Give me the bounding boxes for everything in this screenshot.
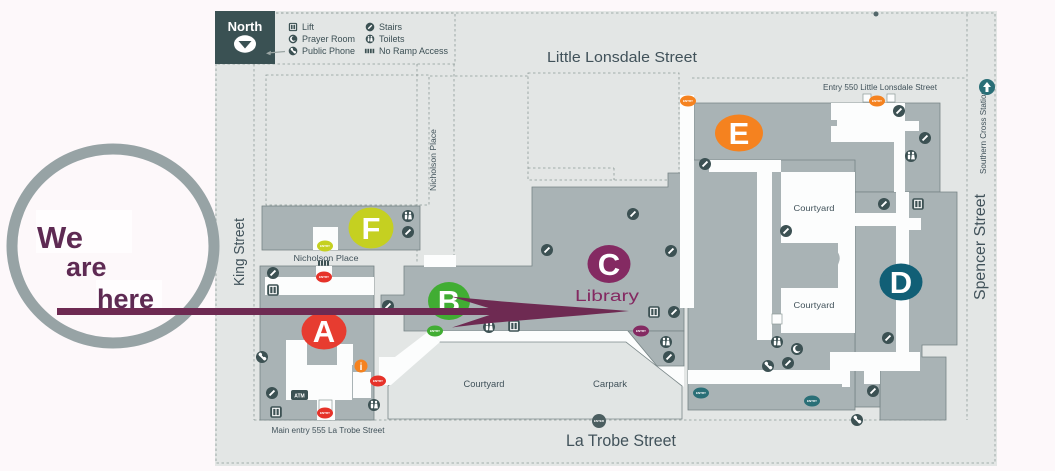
- svg-text:ENTRY: ENTRY: [430, 329, 440, 333]
- svg-text:ENTRY: ENTRY: [872, 99, 882, 103]
- svg-text:Nicholson Place: Nicholson Place: [428, 129, 438, 191]
- svg-text:Southern Cross Station: Southern Cross Station: [978, 90, 988, 174]
- svg-text:ENTRY: ENTRY: [319, 275, 329, 279]
- svg-text:Prayer Room: Prayer Room: [302, 34, 355, 44]
- svg-text:ENTRY: ENTRY: [696, 391, 706, 395]
- svg-text:Stairs: Stairs: [379, 22, 403, 32]
- svg-text:Library: Library: [575, 288, 639, 305]
- svg-text:Carpark: Carpark: [593, 379, 627, 390]
- svg-text:Little Lonsdale Street: Little Lonsdale Street: [547, 50, 697, 66]
- svg-text:D: D: [890, 265, 912, 300]
- svg-text:Courtyard: Courtyard: [794, 300, 835, 310]
- svg-text:King Street: King Street: [232, 218, 248, 286]
- svg-text:We: We: [37, 220, 83, 255]
- svg-text:ATM: ATM: [294, 394, 304, 400]
- svg-text:ENTRY: ENTRY: [636, 329, 646, 333]
- svg-text:Entry 550 Little Lonsdale Stre: Entry 550 Little Lonsdale Street: [823, 83, 938, 92]
- svg-text:Courtyard: Courtyard: [464, 379, 505, 390]
- svg-text:Public Phone: Public Phone: [302, 46, 355, 56]
- svg-text:Courtyard: Courtyard: [794, 203, 835, 213]
- svg-text:ENTRY: ENTRY: [807, 399, 817, 403]
- svg-text:ENTRY: ENTRY: [320, 411, 330, 415]
- svg-text:Lift: Lift: [302, 22, 315, 32]
- svg-text:are: are: [66, 252, 107, 282]
- svg-text:ENTER: ENTER: [594, 419, 605, 423]
- svg-text:ENTRY: ENTRY: [683, 99, 693, 103]
- svg-text:i: i: [360, 362, 363, 373]
- svg-text:ENTRY: ENTRY: [373, 379, 383, 383]
- svg-text:ENTRY: ENTRY: [320, 244, 330, 248]
- svg-text:Main entry 555 La Trobe Street: Main entry 555 La Trobe Street: [272, 426, 386, 435]
- svg-text:North: North: [228, 19, 263, 34]
- svg-text:F: F: [362, 211, 381, 246]
- svg-text:Spencer Street: Spencer Street: [972, 193, 989, 300]
- svg-text:E: E: [729, 116, 750, 151]
- svg-text:Toilets: Toilets: [379, 34, 405, 44]
- svg-text:A: A: [313, 314, 335, 349]
- svg-text:No Ramp Access: No Ramp Access: [379, 46, 449, 56]
- svg-text:C: C: [598, 247, 620, 282]
- svg-text:Nicholson Place: Nicholson Place: [294, 253, 359, 263]
- svg-text:La Trobe Street: La Trobe Street: [566, 431, 676, 450]
